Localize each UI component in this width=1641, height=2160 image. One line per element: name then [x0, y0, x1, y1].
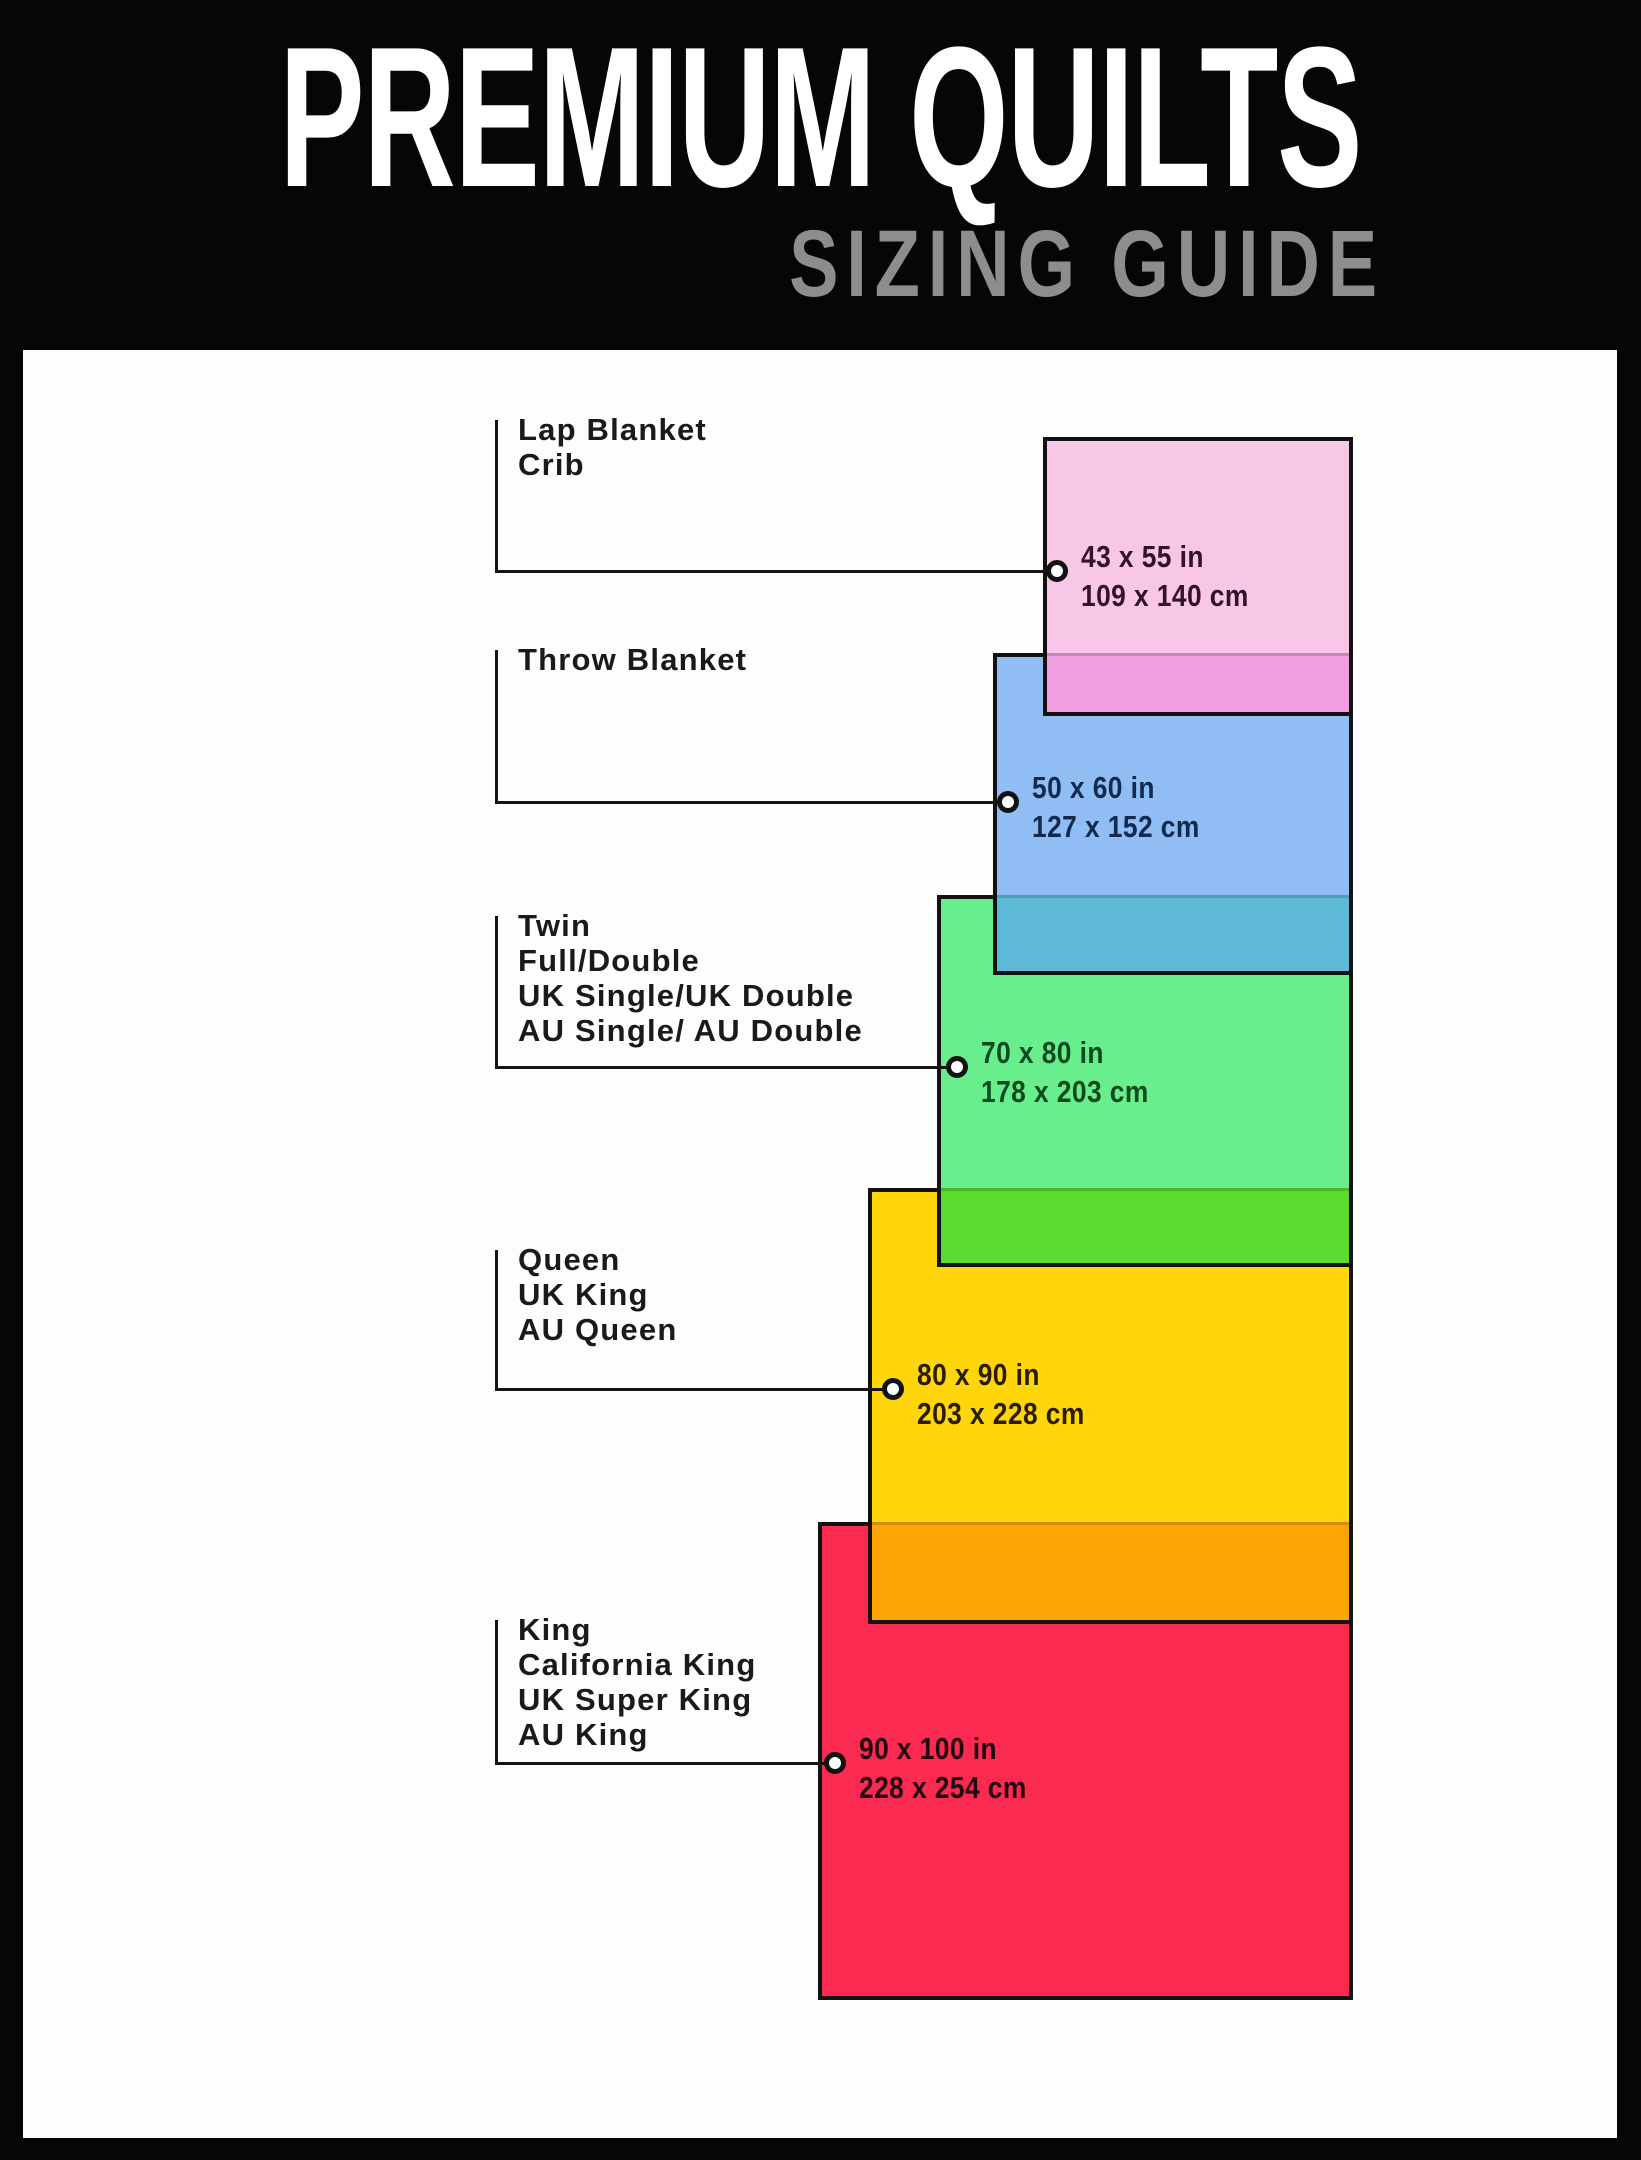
size-dimensions-queen: 80 x 90 in203 x 228 cm	[917, 1355, 1085, 1433]
connector-vline-twin	[495, 916, 498, 1069]
category-label-lap-blanket: Lap BlanketCrib	[518, 412, 707, 482]
size-inches: 43 x 55 in	[1081, 537, 1249, 576]
connector-dot-lap-blanket	[1046, 560, 1068, 582]
size-dimensions-king: 90 x 100 in228 x 254 cm	[859, 1729, 1027, 1807]
overlap-band-queen	[872, 1522, 1349, 1620]
connector-dot-throw-blanket	[997, 791, 1019, 813]
size-inches: 90 x 100 in	[859, 1729, 1027, 1768]
category-label-twin: TwinFull/DoubleUK Single/UK DoubleAU Sin…	[518, 908, 863, 1048]
sizing-guide-page: PREMIUM QUILTS SIZING GUIDE Lap BlanketC…	[0, 0, 1641, 2160]
category-label-line: UK King	[518, 1277, 677, 1312]
size-centimeters: 109 x 140 cm	[1081, 576, 1249, 615]
category-label-king: KingCalifornia KingUK Super KingAU King	[518, 1612, 756, 1752]
category-label-queen: QueenUK KingAU Queen	[518, 1242, 677, 1347]
overlap-band-twin	[941, 1188, 1349, 1263]
connector-hline-king	[495, 1762, 826, 1765]
category-label-line: Twin	[518, 908, 863, 943]
connector-vline-king	[495, 1620, 498, 1765]
category-label-line: Lap Blanket	[518, 412, 707, 447]
category-label-throw-blanket: Throw Blanket	[518, 642, 747, 677]
size-centimeters: 203 x 228 cm	[917, 1394, 1085, 1433]
category-label-line: California King	[518, 1647, 756, 1682]
connector-vline-throw-blanket	[495, 650, 498, 804]
title-row: PREMIUM QUILTS	[0, 18, 1641, 218]
size-dimensions-throw-blanket: 50 x 60 in127 x 152 cm	[1032, 768, 1200, 846]
size-inches: 80 x 90 in	[917, 1355, 1085, 1394]
category-label-line: AU Single/ AU Double	[518, 1013, 863, 1048]
connector-dot-twin	[946, 1056, 968, 1078]
size-centimeters: 228 x 254 cm	[859, 1768, 1027, 1807]
category-label-line: Full/Double	[518, 943, 863, 978]
page-title: PREMIUM QUILTS	[280, 18, 1362, 218]
category-label-line: King	[518, 1612, 756, 1647]
category-label-line: UK Single/UK Double	[518, 978, 863, 1013]
connector-vline-queen	[495, 1250, 498, 1391]
category-label-line: Throw Blanket	[518, 642, 747, 677]
size-dimensions-twin: 70 x 80 in178 x 203 cm	[981, 1033, 1149, 1111]
category-label-line: Queen	[518, 1242, 677, 1277]
category-label-line: AU Queen	[518, 1312, 677, 1347]
page-subtitle: SIZING GUIDE	[789, 217, 1385, 312]
connector-dot-king	[824, 1752, 846, 1774]
category-label-line: AU King	[518, 1717, 756, 1752]
connector-hline-throw-blanket	[495, 801, 999, 804]
size-centimeters: 178 x 203 cm	[981, 1072, 1149, 1111]
connector-vline-lap-blanket	[495, 420, 498, 573]
size-dimensions-lap-blanket: 43 x 55 in109 x 140 cm	[1081, 537, 1249, 615]
overlap-band-throw-blanket	[997, 895, 1349, 971]
category-label-line: Crib	[518, 447, 707, 482]
overlap-band-lap-blanket	[1047, 653, 1349, 712]
header: PREMIUM QUILTS SIZING GUIDE	[0, 0, 1641, 350]
connector-hline-twin	[495, 1066, 948, 1069]
size-inches: 50 x 60 in	[1032, 768, 1200, 807]
size-centimeters: 127 x 152 cm	[1032, 807, 1200, 846]
category-label-line: UK Super King	[518, 1682, 756, 1717]
connector-hline-queen	[495, 1388, 884, 1391]
size-inches: 70 x 80 in	[981, 1033, 1149, 1072]
connector-dot-queen	[882, 1378, 904, 1400]
connector-hline-lap-blanket	[495, 570, 1048, 573]
